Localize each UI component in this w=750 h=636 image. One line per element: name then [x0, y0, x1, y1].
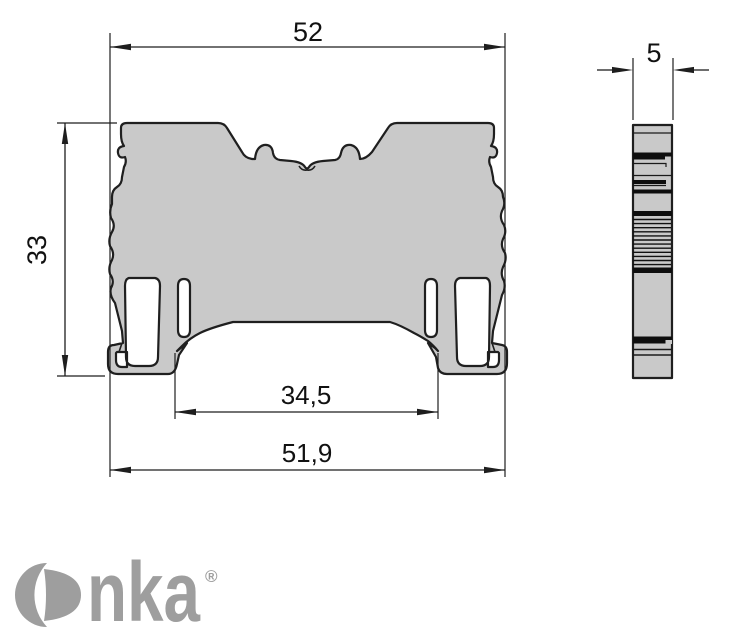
registered-trademark-symbol: ®	[205, 567, 218, 586]
technical-drawing-page: 52 33 34,5 51,9	[0, 0, 750, 636]
dim-width-bottom: 51,9	[110, 438, 505, 473]
arrowhead-inward-right	[673, 67, 694, 73]
dim-value-width-bottom: 51,9	[282, 438, 333, 468]
dim-side-thickness: 5	[597, 38, 709, 120]
side-detail-band	[633, 180, 666, 184]
arrowhead-left	[175, 409, 196, 415]
dim-inner-width: 34,5	[175, 353, 438, 419]
dim-value-height: 33	[22, 235, 52, 265]
front-view	[108, 123, 507, 374]
onka-o-mark-disc-icon	[44, 569, 81, 621]
logo-letters: nka	[87, 545, 201, 636]
terminal-block-drawing: 52 33 34,5 51,9	[0, 0, 750, 636]
side-band-notch	[666, 340, 673, 344]
side-rib-top-band	[633, 211, 672, 216]
onka-o-mark-crescent-icon	[15, 563, 47, 627]
arrowhead-left	[110, 467, 131, 473]
arrowhead-up	[62, 123, 68, 144]
arrowhead-left	[110, 44, 131, 50]
dim-value-inner-width: 34,5	[281, 380, 332, 410]
onka-logo: nka ®	[15, 545, 218, 636]
arrowhead-right	[484, 467, 505, 473]
arrowhead-right	[484, 44, 505, 50]
front-profile-shape	[108, 123, 507, 374]
arrowhead-right	[417, 409, 438, 415]
dim-height-left: 33	[22, 123, 117, 376]
side-detail-band	[633, 156, 665, 160]
side-view	[633, 125, 672, 378]
arrowhead-inward-left	[612, 67, 633, 73]
side-rib-bottom-band	[633, 268, 672, 274]
side-detail-band	[633, 190, 672, 194]
dim-value-thickness: 5	[646, 38, 661, 68]
dim-value-width-top: 52	[293, 17, 323, 47]
arrowhead-down	[62, 355, 68, 376]
side-detail-band	[633, 153, 672, 157]
